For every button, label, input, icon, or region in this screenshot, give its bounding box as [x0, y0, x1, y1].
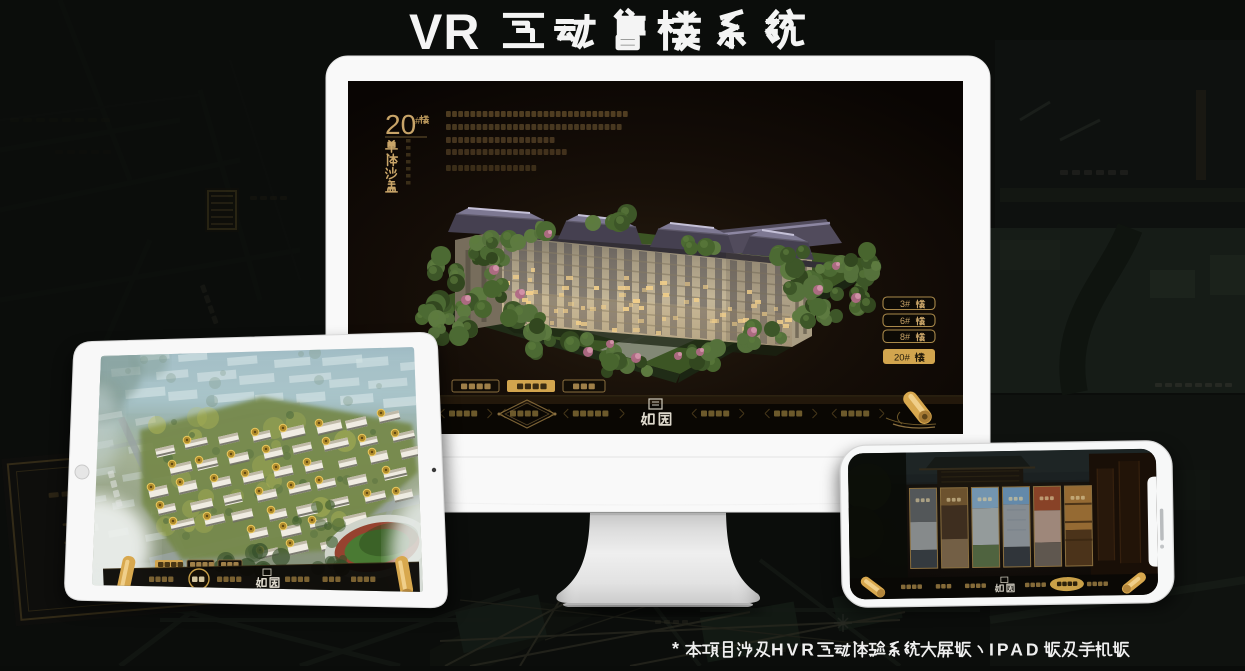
svg-text:8#: 8#: [900, 332, 910, 342]
svg-text:20#: 20#: [894, 353, 911, 364]
svg-text:HVR: HVR: [771, 640, 817, 660]
svg-text:*: *: [672, 639, 679, 659]
svg-text:3#: 3#: [900, 299, 910, 309]
svg-text:VR: VR: [409, 4, 480, 60]
svg-text:20: 20: [385, 109, 416, 140]
svg-text:6#: 6#: [900, 316, 910, 326]
svg-text:IPAD: IPAD: [989, 640, 1042, 660]
